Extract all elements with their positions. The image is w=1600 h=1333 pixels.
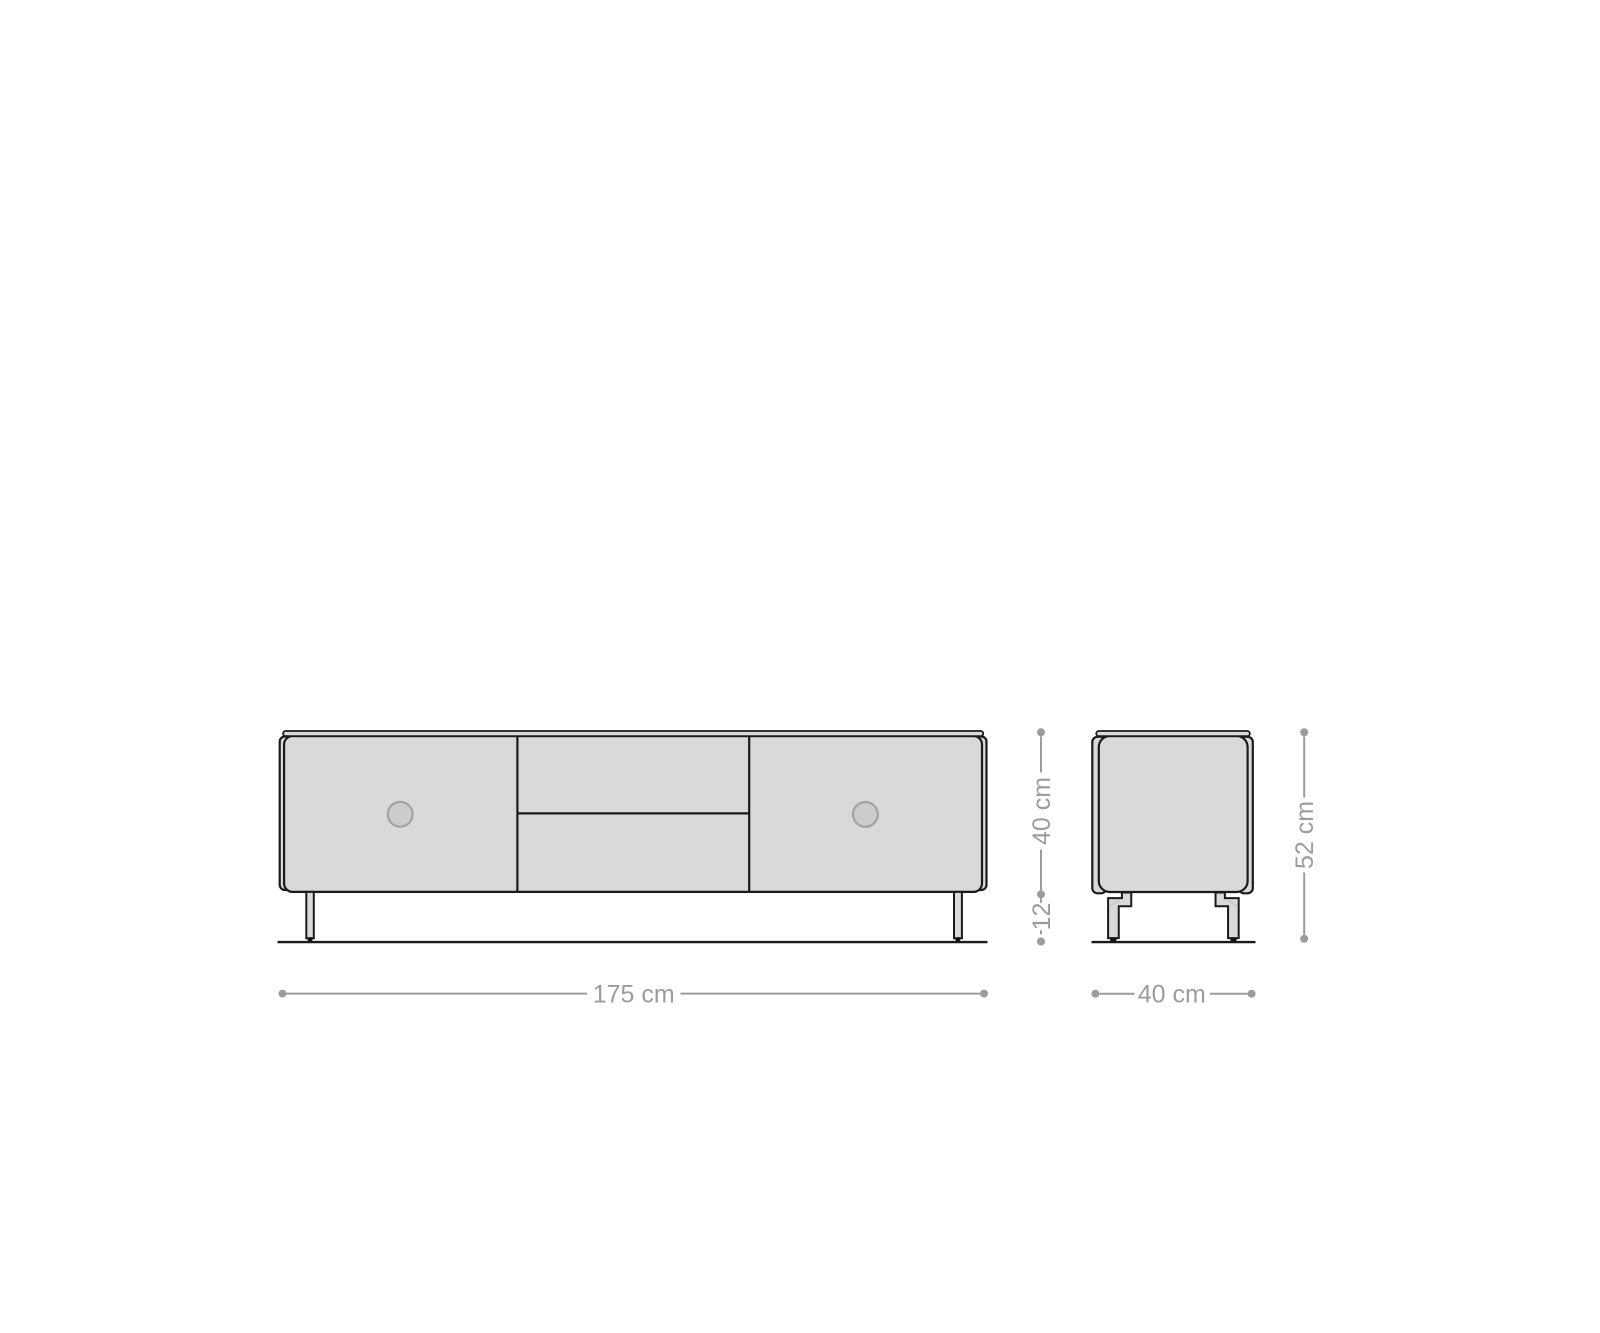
svg-text:52 cm: 52 cm (1291, 801, 1319, 869)
svg-text:12: 12 (1028, 903, 1056, 931)
svg-text:40 cm: 40 cm (1028, 777, 1056, 845)
svg-text:175 cm: 175 cm (593, 980, 675, 1008)
svg-text:40 cm: 40 cm (1138, 980, 1206, 1008)
